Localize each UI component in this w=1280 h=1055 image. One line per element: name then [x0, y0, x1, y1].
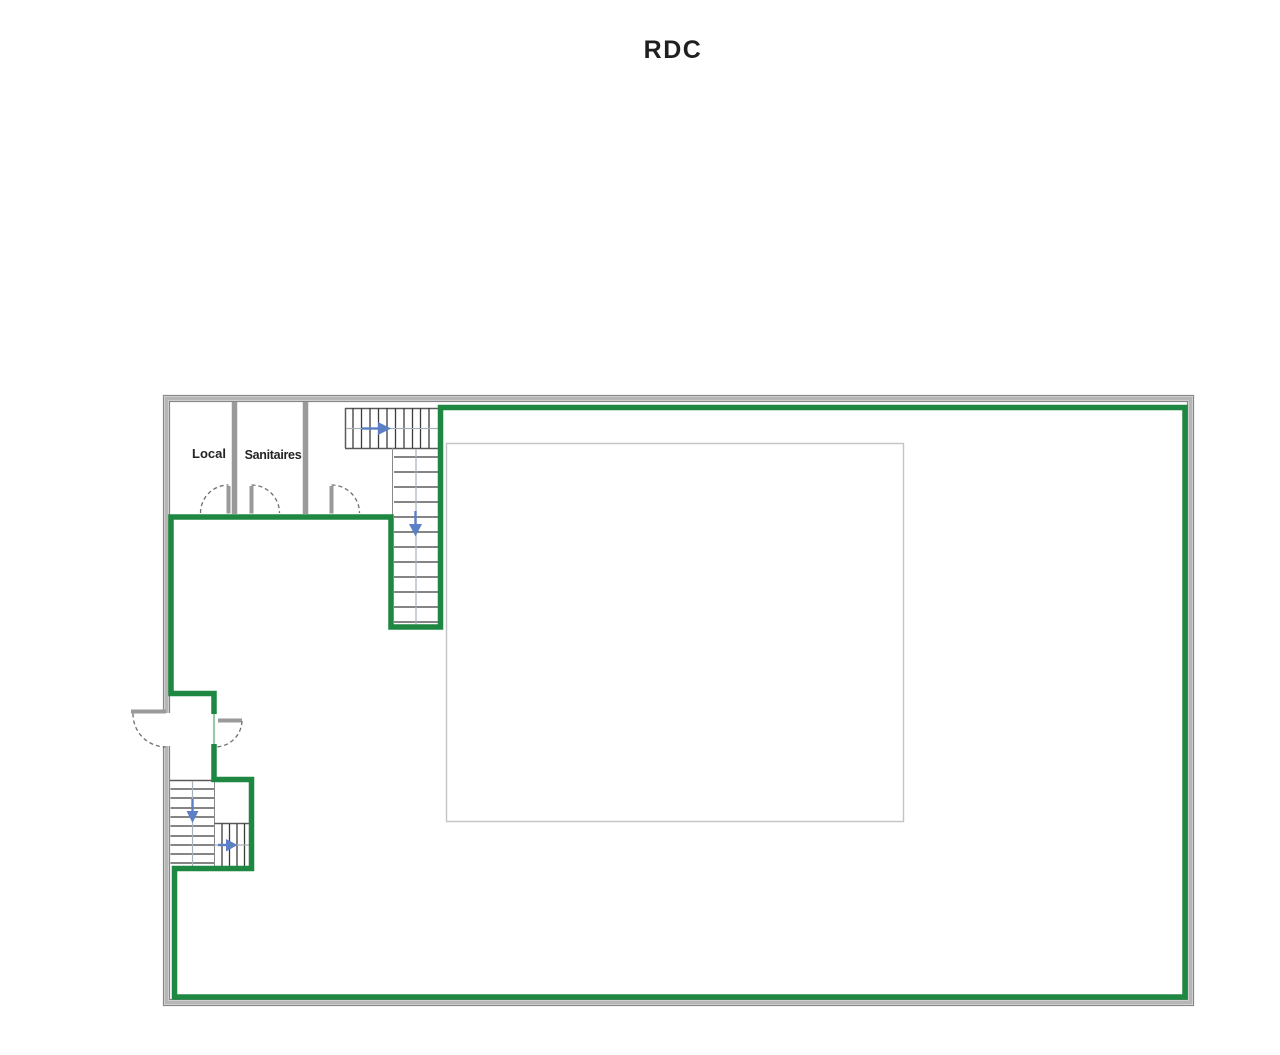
- stair-arrow-right-icon: [218, 839, 238, 852]
- door-swing-arc: [215, 721, 243, 747]
- staircase-bottom-left: [170, 780, 252, 868]
- entrance-door-opening: [161, 713, 172, 746]
- floor-plan-svg: [0, 0, 1280, 1055]
- outer-wall: [161, 396, 1194, 1006]
- room-label-local: Local: [186, 446, 232, 461]
- zone-outline: [171, 408, 1185, 998]
- door-swing-arc: [133, 714, 166, 748]
- door-swing-arc: [252, 485, 280, 513]
- room-label-sanitaires: Sanitaires: [234, 448, 312, 462]
- door-swing-arc: [201, 485, 229, 513]
- stair-arrow-down-icon: [409, 511, 422, 537]
- door-swing-arc: [332, 485, 360, 513]
- stair-arrow-down-icon: [187, 799, 199, 823]
- inner-area-rectangle: [447, 444, 904, 822]
